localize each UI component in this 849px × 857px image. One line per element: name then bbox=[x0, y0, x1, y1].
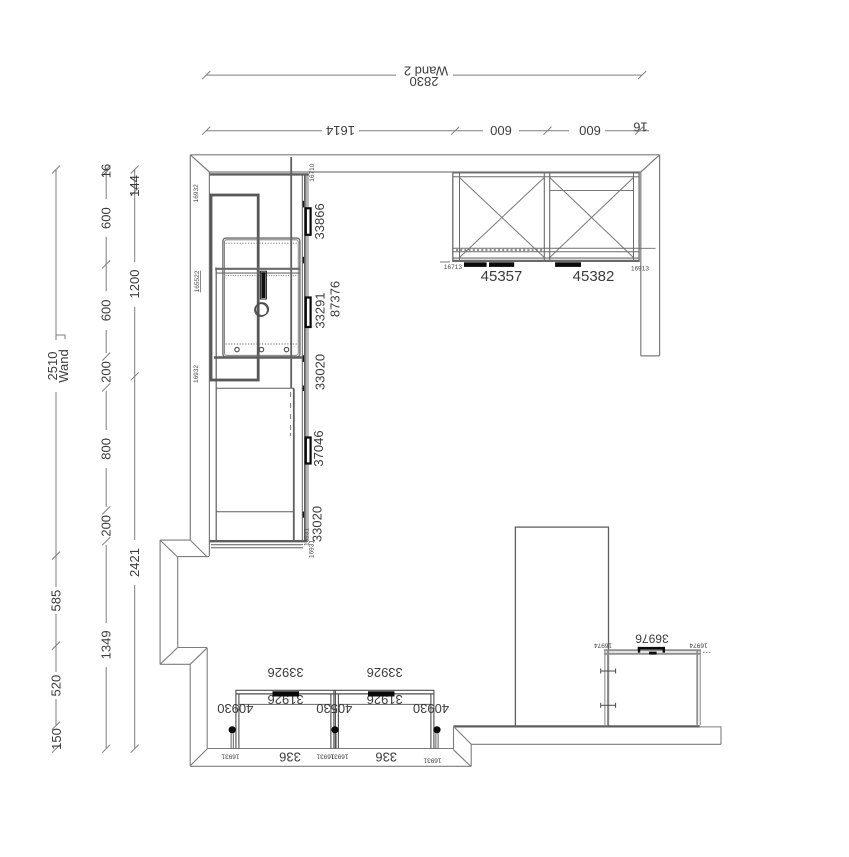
svg-text:16974: 16974 bbox=[689, 641, 707, 648]
svg-text:37046: 37046 bbox=[311, 430, 326, 466]
svg-text:87376: 87376 bbox=[328, 281, 343, 317]
svg-text:2421: 2421 bbox=[127, 548, 142, 577]
svg-text:16713: 16713 bbox=[444, 264, 462, 271]
svg-text:336: 336 bbox=[279, 749, 301, 764]
svg-text:33020: 33020 bbox=[310, 506, 325, 542]
svg-text:16974: 16974 bbox=[594, 641, 612, 648]
svg-text:16932: 16932 bbox=[193, 365, 200, 383]
svg-text:600: 600 bbox=[579, 123, 601, 138]
svg-text:16931: 16931 bbox=[309, 540, 316, 558]
svg-text:600: 600 bbox=[99, 207, 114, 229]
svg-text:200: 200 bbox=[99, 361, 114, 383]
svg-text:336: 336 bbox=[375, 749, 397, 764]
svg-text:1349: 1349 bbox=[99, 630, 114, 659]
svg-text:1200: 1200 bbox=[127, 270, 142, 299]
svg-text:40530: 40530 bbox=[316, 701, 352, 716]
svg-text:36976: 36976 bbox=[635, 632, 669, 646]
svg-text:585: 585 bbox=[48, 590, 63, 612]
svg-text:150: 150 bbox=[49, 728, 64, 750]
svg-text:33926: 33926 bbox=[367, 665, 403, 680]
svg-text:600: 600 bbox=[99, 300, 114, 322]
svg-text:16932: 16932 bbox=[193, 184, 200, 202]
svg-text:16931: 16931 bbox=[423, 757, 441, 764]
svg-text:600: 600 bbox=[490, 123, 512, 138]
svg-text:165522: 165522 bbox=[194, 270, 201, 292]
svg-text:45357: 45357 bbox=[481, 268, 523, 285]
svg-text:200: 200 bbox=[99, 515, 114, 537]
svg-text:16: 16 bbox=[633, 120, 647, 135]
svg-text:33926: 33926 bbox=[268, 665, 304, 680]
svg-text:33020: 33020 bbox=[313, 354, 328, 390]
svg-text:2830: 2830 bbox=[410, 74, 439, 89]
svg-text:16913: 16913 bbox=[631, 266, 649, 273]
svg-text:144: 144 bbox=[127, 175, 142, 197]
svg-text:16: 16 bbox=[99, 164, 114, 178]
svg-text:800: 800 bbox=[99, 438, 114, 460]
svg-text:16931: 16931 bbox=[330, 752, 348, 759]
svg-text:16931: 16931 bbox=[221, 752, 239, 759]
svg-text:45382: 45382 bbox=[573, 268, 615, 285]
svg-text:40930: 40930 bbox=[413, 701, 449, 716]
svg-text:40930: 40930 bbox=[217, 701, 253, 716]
svg-text:33291: 33291 bbox=[313, 292, 328, 328]
svg-text:Wand: Wand bbox=[56, 349, 71, 382]
svg-text:33866: 33866 bbox=[312, 203, 327, 239]
svg-text:1614: 1614 bbox=[326, 123, 355, 138]
svg-text:520: 520 bbox=[48, 675, 63, 697]
svg-text:16710: 16710 bbox=[309, 163, 316, 181]
